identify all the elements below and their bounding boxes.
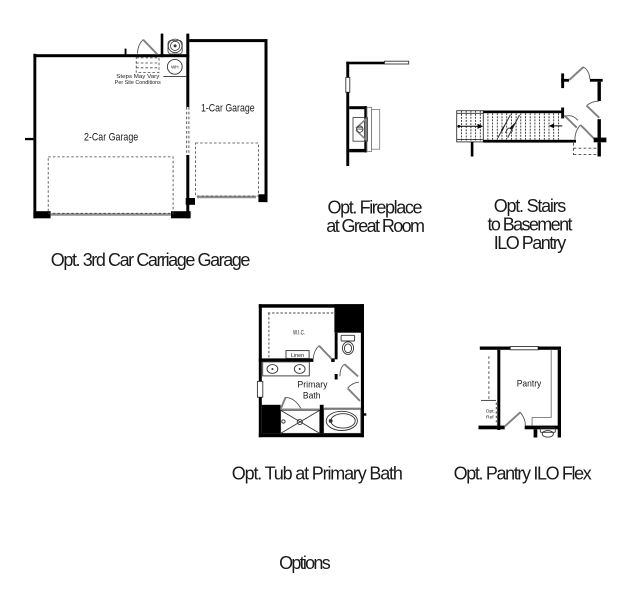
svg-text:Pantry: Pantry: [517, 378, 542, 388]
svg-text:to Basement: to Basement: [488, 215, 573, 235]
svg-text:Primary: Primary: [297, 380, 328, 390]
svg-text:WH: WH: [171, 65, 179, 70]
svg-text:Opt. Stairs: Opt. Stairs: [494, 196, 567, 216]
svg-text:Ref: Ref: [486, 415, 494, 421]
svg-text:W.I.C.: W.I.C.: [293, 330, 305, 336]
svg-text:Opt. Tub at Primary Bath: Opt. Tub at Primary Bath: [232, 464, 403, 484]
svg-text:Options: Options: [279, 553, 331, 573]
svg-text:2-Car Garage: 2-Car Garage: [84, 132, 138, 144]
svg-text:Opt.: Opt.: [486, 409, 495, 415]
svg-text:Bath: Bath: [303, 390, 321, 400]
svg-text:Opt. Fireplace: Opt. Fireplace: [328, 197, 423, 217]
svg-text:Per Site Conditions: Per Site Conditions: [115, 80, 161, 86]
svg-text:1-Car Garage: 1-Car Garage: [201, 103, 255, 115]
svg-text:Opt. 3rd Car Carriage Garage: Opt. 3rd Car Carriage Garage: [51, 250, 251, 270]
svg-text:at Great Room: at Great Room: [326, 216, 425, 236]
svg-text:Opt. Pantry ILO Flex: Opt. Pantry ILO Flex: [454, 464, 592, 484]
svg-text:Linen: Linen: [291, 353, 304, 359]
svg-text:ILO Pantry: ILO Pantry: [494, 233, 567, 253]
